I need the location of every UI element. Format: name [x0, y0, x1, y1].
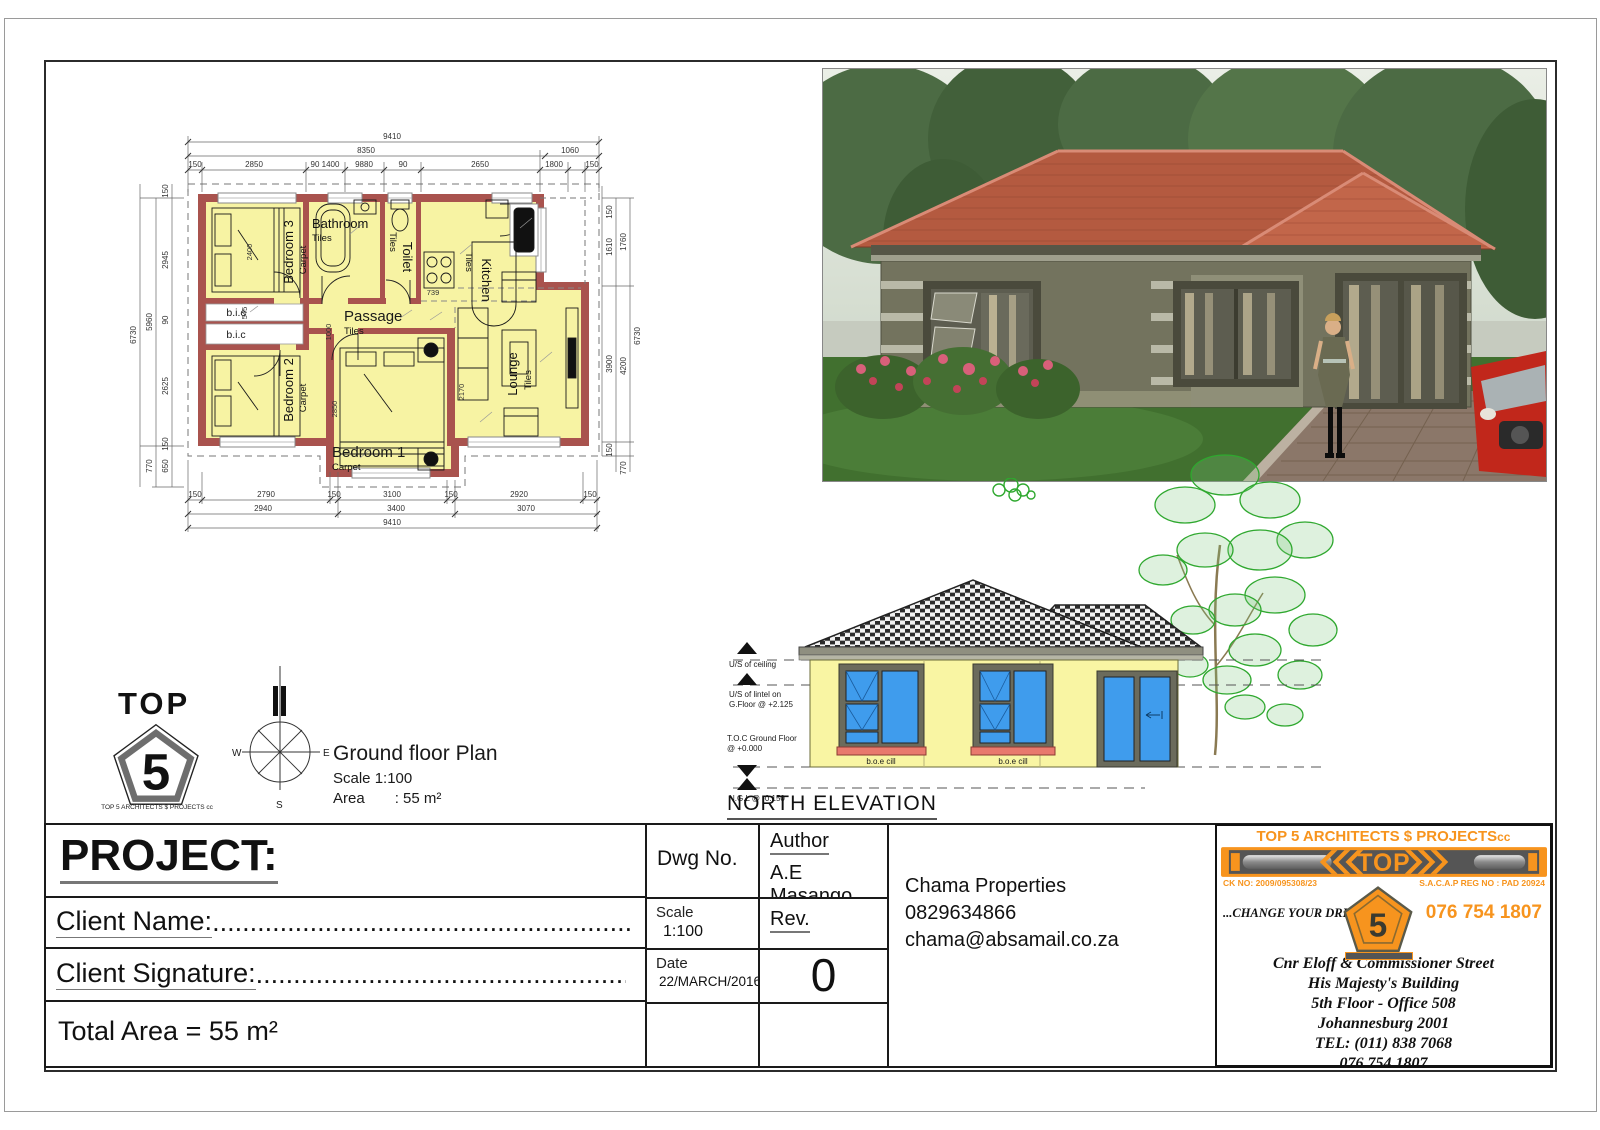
- elev-window-2: [971, 664, 1055, 755]
- compass-south: S: [276, 800, 283, 811]
- dim-texts-top: 9410 8350 1060 150 2850 90 1400 9880 90 …: [188, 132, 599, 169]
- label-kitchen: Kitchen: [479, 258, 494, 301]
- brand-box: TOP 5 ARCHITECTS $ PROJECTScc TOP CK NO:…: [1215, 824, 1553, 1068]
- render-patio-door: [1335, 273, 1467, 409]
- brand-header: TOP 5 ARCHITECTS $ PROJECTScc: [1217, 828, 1550, 845]
- dim-b1-6: 150: [583, 490, 597, 499]
- dim-r1-0: 150: [605, 205, 614, 219]
- label-bic-top: b.i.c: [226, 307, 245, 319]
- dim-b2-2: 3070: [517, 504, 535, 513]
- brand-pentagon-ribbon: [1345, 952, 1413, 960]
- label-passage: Passage: [344, 308, 402, 325]
- brand-pentagon: 5: [1339, 886, 1417, 954]
- total-area: Total Area = 55 m²: [46, 1002, 645, 1047]
- bic-cells: [206, 304, 303, 344]
- brand-banner: TOP: [1221, 847, 1547, 877]
- dim-r1-1: 1610: [605, 238, 614, 256]
- dim-r1-3: 150: [605, 443, 614, 457]
- dim-l1-2: 90: [161, 315, 170, 324]
- dim-l2-0: 5960: [145, 313, 154, 331]
- dim-r2-2: 770: [619, 461, 628, 475]
- cell-date: Date 22/MARCH/2016: [645, 948, 760, 1004]
- dim-r2-0: 1760: [619, 233, 628, 251]
- elev-door: [1097, 671, 1177, 767]
- dim-int-bed1: 2850: [330, 401, 339, 418]
- dim-b1-5: 2920: [510, 490, 528, 499]
- dim-l1-5: 650: [161, 459, 170, 473]
- label-lounge-floor: Tiles: [523, 370, 534, 390]
- address-line: 076 754 1807: [1217, 1054, 1550, 1074]
- label-toilet-floor: Tiles: [387, 232, 398, 252]
- rev-value: 0: [760, 948, 887, 1002]
- dim-l1-4: 150: [161, 437, 170, 451]
- address-line: His Majesty's Building: [1217, 974, 1550, 994]
- label-us-ceiling: U/S of ceiling: [729, 660, 776, 669]
- label-toc-2: @ +0.000: [727, 744, 763, 753]
- north-elevation: U/S of ceiling U/S of lintel on G.Floor …: [715, 445, 1350, 805]
- plan-caption-scale: Scale 1:100: [333, 770, 498, 787]
- label-bedroom3-floor: Carpet: [298, 245, 309, 274]
- cell-project: PROJECT:: [44, 823, 647, 898]
- address-line: 5th Floor - Office 508: [1217, 994, 1550, 1014]
- render-window-mid: [1173, 281, 1299, 387]
- dim-b3: 9410: [383, 518, 401, 527]
- cell-total-area: Total Area = 55 m²: [44, 1000, 647, 1068]
- brand-header-suffix: cc: [1497, 830, 1510, 844]
- brand-ck-no: CK NO: 2009/095308/23: [1223, 878, 1317, 888]
- dim-b1-2: 150: [327, 490, 341, 499]
- label-cill-left: b.o.e cill: [866, 757, 896, 766]
- label-us-lintel-1: U/S of lintel on: [729, 690, 781, 699]
- porch-dashed: [540, 198, 592, 284]
- plan-caption: Ground floor Plan Scale 1:100 Area: 55 m…: [333, 742, 498, 807]
- dim-top3-0: 150: [188, 160, 202, 169]
- cell-rev: Rev.: [758, 897, 889, 950]
- plan-caption-area-value: : 55 m²: [395, 790, 442, 807]
- label-passage-floor: Tiles: [344, 326, 364, 337]
- dim-b1-1: 2790: [257, 490, 275, 499]
- client-name-label: Client Name:: [56, 906, 212, 938]
- dim-l2-1: 770: [145, 459, 154, 473]
- render-car: [1471, 351, 1546, 477]
- project-label: PROJECT:: [60, 831, 278, 884]
- client-name-dots: ........................................…: [212, 907, 632, 938]
- brand-sacap: S.A.C.A.P REG NO : PAD 20924: [1419, 878, 1545, 888]
- date-value: 22/MARCH/2016: [647, 972, 758, 989]
- date-label: Date: [647, 950, 758, 972]
- dim-int-bed3: 2400: [245, 244, 254, 261]
- compass-needle: [273, 686, 278, 716]
- scale-label: Scale: [647, 899, 758, 921]
- elev-window-1: [837, 664, 926, 755]
- cell-dwg-no: Dwg No.: [645, 823, 760, 899]
- dim-texts-left: 150 2945 90 2625 150 650 5960 770 6730: [129, 184, 170, 473]
- label-bathroom: Bathroom: [312, 216, 368, 231]
- dim-top3-1: 2850: [245, 160, 263, 169]
- brand-mid-row: ...CHANGE YOUR DREAM... 5 076 754 1807: [1217, 890, 1550, 948]
- dim-top3-4: 90: [399, 160, 408, 169]
- label-bedroom2: Bedroom 2: [281, 358, 296, 422]
- label-cill-right: b.o.e cill: [998, 757, 1028, 766]
- brand-pentagon-number: 5: [1369, 908, 1387, 945]
- plan-caption-area-label: Area: [333, 790, 365, 807]
- label-bathroom-floor: Tiles: [312, 233, 332, 244]
- label-bedroom2-floor: Carpet: [298, 383, 309, 412]
- logo-pentagon-number: 5: [142, 744, 170, 801]
- dim-top-9410: 9410: [383, 132, 401, 141]
- client-signature-dots: ........................................…: [256, 959, 626, 990]
- author-label: Author: [770, 830, 829, 855]
- cell-empty-left: [645, 1002, 760, 1068]
- label-bedroom3: Bedroom 3: [281, 220, 296, 284]
- logo-pentagon: 5: [106, 722, 206, 806]
- brand-phone-big: 076 754 1807: [1426, 902, 1542, 924]
- logo-top-word: TOP: [118, 686, 190, 722]
- dim-top3-3: 9880: [355, 160, 373, 169]
- label-us-lintel-2: G.Floor @ +2.125: [729, 700, 793, 709]
- dim-r2-1: 4200: [619, 357, 628, 375]
- elevation-house: [799, 580, 1203, 767]
- dwg-label: Dwg No.: [647, 825, 758, 871]
- rev-label: Rev.: [770, 908, 810, 933]
- logo-subtext: TOP 5 ARCHITECTS $ PROJECTS cc: [92, 804, 222, 811]
- render-3d: [822, 68, 1547, 482]
- floor-plan: 9410 8350 1060 150 2850 90 1400 9880 90 …: [100, 112, 660, 560]
- label-toilet: Toilet: [400, 242, 415, 273]
- dim-top3-6: 1800: [545, 160, 563, 169]
- cell-scale: Scale 1:100: [645, 897, 760, 950]
- dim-int-lounge: 2170: [457, 384, 466, 401]
- elevation-title: NORTH ELEVATION: [727, 792, 937, 820]
- dim-top3-7: 150: [585, 160, 599, 169]
- address-line: TEL: (011) 838 7068: [1217, 1034, 1550, 1054]
- plan-caption-title: Ground floor Plan: [333, 742, 498, 766]
- dim-l1-3: 2625: [161, 377, 170, 395]
- client-signature-label: Client Signature:: [56, 958, 256, 990]
- label-kitchen-floor: Tiles: [463, 252, 474, 272]
- plan-caption-area: Area: 55 m²: [333, 790, 498, 807]
- dim-r3: 6730: [633, 327, 642, 345]
- cell-rev-value: 0: [758, 948, 889, 1004]
- dim-b1-3: 3100: [383, 490, 401, 499]
- dim-int-passage: 1000: [324, 324, 333, 341]
- dim-top-1060: 1060: [561, 146, 579, 155]
- dim-top3-5: 2650: [471, 160, 489, 169]
- dim-l3: 6730: [129, 326, 138, 344]
- label-bic-bottom: b.i.c: [226, 329, 245, 341]
- dim-top3-2: 90 1400: [311, 160, 340, 169]
- label-bedroom1: Bedroom 1: [332, 444, 405, 461]
- dim-texts-bottom: 150 2790 150 3100 150 2920 150 2940 3400…: [188, 490, 597, 527]
- dim-l1-1: 2945: [161, 251, 170, 269]
- address-line: Johannesburg 2001: [1217, 1014, 1550, 1034]
- label-lounge: Lounge: [505, 352, 520, 395]
- compass-rose: W E S: [228, 660, 332, 818]
- cell-client-signature: Client Signature:.......................…: [44, 947, 647, 1002]
- dim-int-kitchen: 739: [427, 288, 440, 297]
- dim-texts-right: 150 1610 3900 150 1760 4200 770 6730: [605, 205, 642, 475]
- dim-b2-0: 2940: [254, 504, 272, 513]
- label-toc-1: T.O.C Ground Floor: [727, 734, 797, 743]
- dim-b1-0: 150: [188, 490, 202, 499]
- compass-west: W: [232, 748, 242, 759]
- dim-b1-4: 150: [444, 490, 458, 499]
- compass-east: E: [323, 748, 330, 759]
- dim-r1-2: 3900: [605, 355, 614, 373]
- cell-client-name: Client Name:............................…: [44, 896, 647, 949]
- cell-author: Author A.E Masango: [758, 823, 889, 899]
- banner-word: TOP: [1357, 850, 1410, 877]
- dim-top-8350: 8350: [357, 146, 375, 155]
- dim-b2-1: 3400: [387, 504, 405, 513]
- label-bedroom1-floor: Carpet: [332, 462, 361, 473]
- brand-address: Cnr Eloff & Commissioner Street His Maje…: [1217, 954, 1550, 1074]
- cell-empty-mid: [758, 1002, 889, 1068]
- brand-header-main: TOP 5 ARCHITECTS $ PROJECTS: [1257, 828, 1498, 845]
- dim-l1-0: 150: [161, 184, 170, 198]
- scale-value: 1:100: [647, 921, 758, 941]
